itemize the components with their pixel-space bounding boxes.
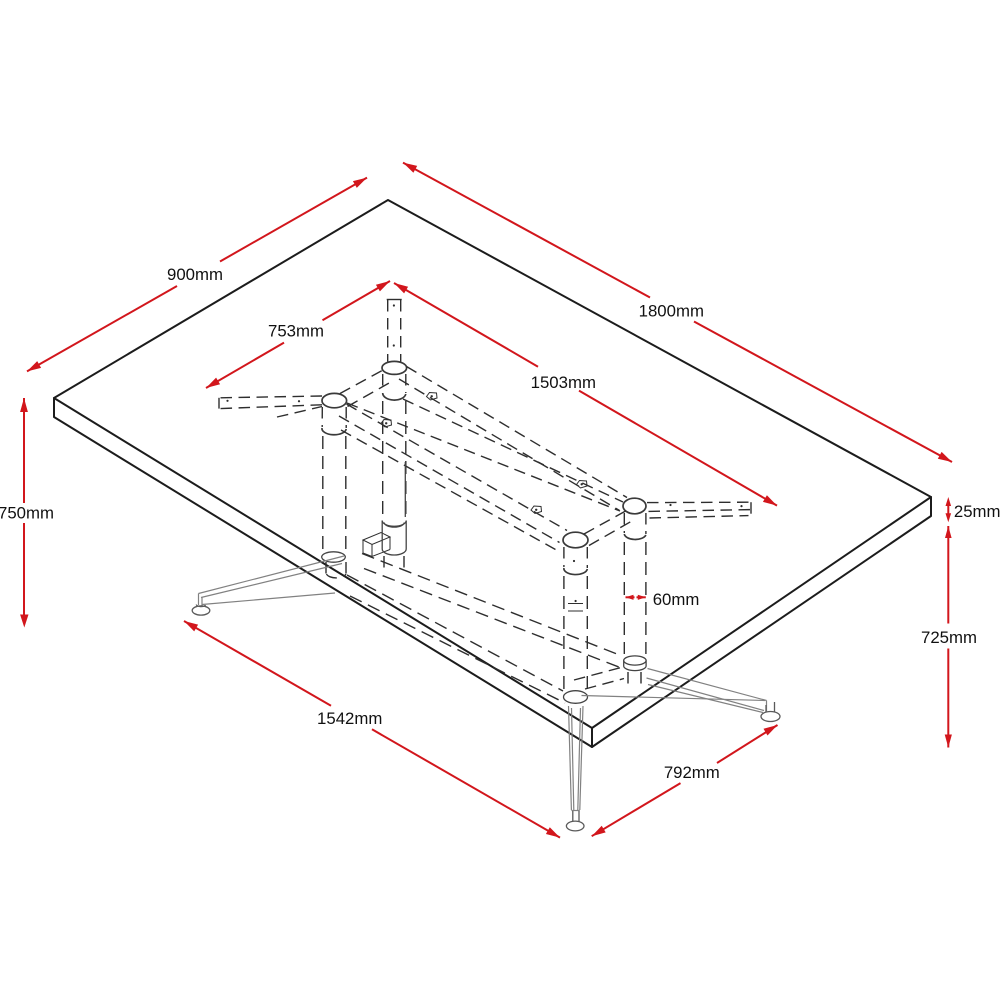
svg-text:750mm: 750mm — [0, 504, 54, 523]
svg-text:60mm: 60mm — [653, 590, 700, 609]
svg-text:1800mm: 1800mm — [639, 302, 704, 321]
svg-text:1542mm: 1542mm — [317, 709, 382, 728]
svg-text:753mm: 753mm — [268, 322, 324, 341]
svg-text:725mm: 725mm — [921, 628, 977, 647]
svg-text:1503mm: 1503mm — [531, 373, 596, 392]
svg-text:900mm: 900mm — [167, 265, 223, 284]
svg-text:25mm: 25mm — [954, 502, 1000, 521]
svg-text:792mm: 792mm — [664, 763, 720, 782]
